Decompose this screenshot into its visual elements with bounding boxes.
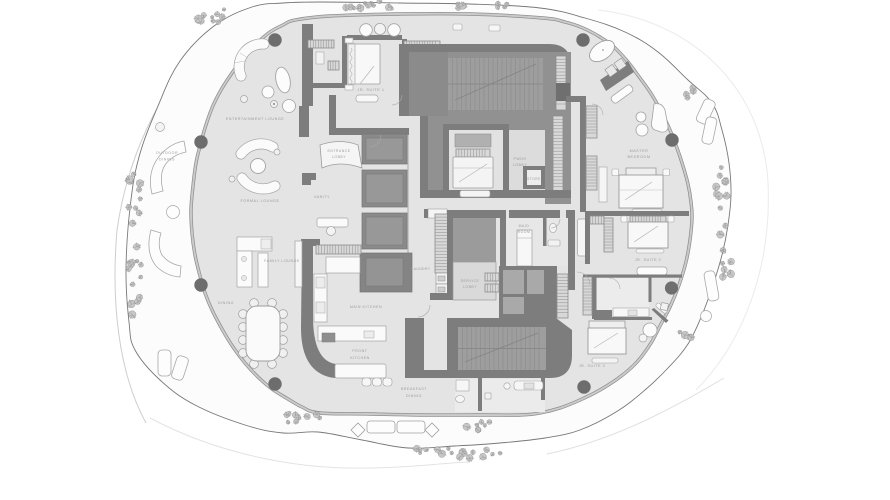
svg-text:BREAKFAST: BREAKFAST [401, 387, 427, 391]
svg-text:MAID: MAID [519, 224, 530, 228]
svg-text:FAMILY LOUNGE: FAMILY LOUNGE [264, 259, 300, 263]
svg-text:ROOM: ROOM [518, 230, 531, 234]
svg-text:STORE: STORE [527, 177, 541, 181]
svg-text:ENTRANCE: ENTRANCE [327, 149, 350, 153]
svg-text:LOBBY: LOBBY [463, 285, 477, 289]
svg-text:FORMAL LOUNGE: FORMAL LOUNGE [241, 199, 280, 203]
svg-text:LOBBY: LOBBY [332, 155, 346, 159]
svg-text:JR. SUITE 3: JR. SUITE 3 [579, 364, 606, 368]
svg-text:OUTDOOR: OUTDOOR [156, 151, 178, 155]
svg-text:JR. SUITE 1: JR. SUITE 1 [357, 88, 384, 92]
svg-text:DINING: DINING [406, 394, 422, 398]
svg-text:DINING: DINING [159, 158, 175, 162]
svg-text:SERVICE: SERVICE [461, 279, 480, 283]
svg-text:JR. SUITE 2: JR. SUITE 2 [635, 258, 662, 262]
svg-text:BEDROOM: BEDROOM [628, 155, 651, 159]
svg-text:KITCHEN: KITCHEN [350, 356, 370, 360]
svg-text:DINING: DINING [218, 301, 234, 305]
svg-text:FRONT: FRONT [352, 349, 367, 353]
svg-text:MAIN KITCHEN: MAIN KITCHEN [350, 305, 382, 309]
svg-text:PWDR: PWDR [514, 157, 527, 161]
svg-text:VANITY: VANITY [314, 195, 330, 199]
svg-text:ENTERTAINMENT LOUNGE: ENTERTAINMENT LOUNGE [226, 117, 285, 121]
svg-text:LAUNDRY: LAUNDRY [411, 267, 430, 271]
svg-text:MASTER: MASTER [630, 149, 649, 153]
